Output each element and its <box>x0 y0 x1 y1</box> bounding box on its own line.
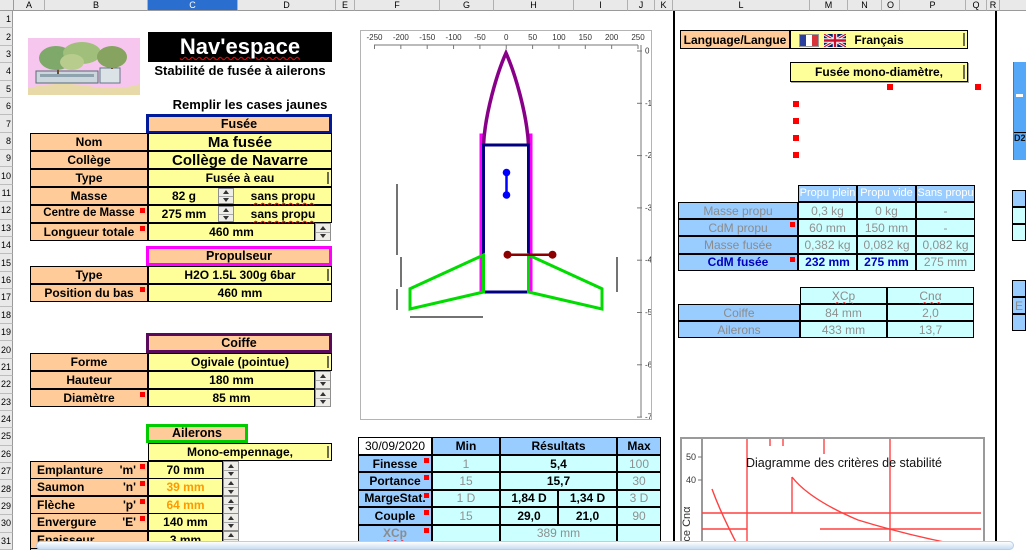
aileron-saumon-label: Saumon'n' <box>30 478 148 496</box>
result-label-margestat.: MargeStat. <box>358 490 432 507</box>
forme-dropdown[interactable]: Ogivale (pointue) <box>148 353 332 371</box>
tick-label: -600 <box>645 360 651 369</box>
propulseur-type-label: Type <box>30 266 148 284</box>
tick-label: 50 <box>528 33 537 42</box>
result-value-0: 5,4 <box>500 455 617 472</box>
row-header-4[interactable]: 4 <box>0 63 13 80</box>
result-value-2a: 1,84 D <box>500 490 558 507</box>
cp-col-header-0: XCp <box>800 287 887 304</box>
row-header-8[interactable]: 8 <box>0 133 13 150</box>
row-header-28[interactable]: 28 <box>0 480 13 497</box>
cp-col-header-1: Cnα <box>887 287 974 304</box>
section-header-coiffe: Coiffe <box>146 333 332 353</box>
formula-fragment: D2 <box>1014 132 1026 143</box>
hauteur-spinner[interactable] <box>315 371 331 389</box>
column-header-B[interactable]: B <box>45 0 148 11</box>
cp-value-0-0: 84 mm <box>800 304 887 321</box>
column-header-J[interactable]: J <box>628 0 655 11</box>
tick-label: -200 <box>393 33 410 42</box>
column-header-C[interactable]: C <box>148 0 238 11</box>
result-value-2b: 1,34 D <box>558 490 617 507</box>
results-header-min: Min <box>432 437 500 455</box>
masse-label: Masse <box>30 187 148 205</box>
column-header-M[interactable]: M <box>810 0 848 11</box>
app-subtitle: Stabilité de fusée à ailerons <box>110 63 370 79</box>
cdm-dot-bottom <box>503 191 511 199</box>
column-header-K[interactable]: K <box>655 0 673 11</box>
result-min-0: 1 <box>432 455 500 472</box>
masse-spinner-down[interactable] <box>219 196 233 204</box>
comment-marker <box>140 516 145 521</box>
row-header-3[interactable]: 3 <box>0 46 13 63</box>
row-header-1[interactable]: 1 <box>0 11 13 28</box>
comment-marker <box>140 208 145 213</box>
row-header-12[interactable]: 12 <box>0 202 13 219</box>
comment-marker <box>975 84 981 90</box>
comment-marker <box>793 101 799 107</box>
tick-label: 0 <box>504 33 509 42</box>
stability-chart: Diagramme des critères de stabilité Port… <box>682 439 983 548</box>
section-header-propulseur: Propulseur <box>146 246 332 266</box>
comment-marker <box>793 152 799 158</box>
aileron-envergure-input[interactable]: 140 mm <box>148 513 223 531</box>
results-header-max: Max <box>617 437 661 455</box>
masses-col-header-1: Propu vide <box>857 185 916 202</box>
row-header-16[interactable]: 16 <box>0 272 13 289</box>
comment-marker <box>140 499 145 504</box>
nom-input[interactable]: Ma fusée <box>148 133 332 151</box>
masses-col-header-0: Propu plein <box>798 185 857 202</box>
partial-table-cell <box>1012 314 1026 331</box>
tick-label: -150 <box>419 33 436 42</box>
longueur-totale-input[interactable]: 460 mm <box>148 223 315 241</box>
aileron-saumon-spinner-up[interactable] <box>224 479 238 487</box>
row-header-7[interactable]: 7 <box>0 115 13 132</box>
result-min-4 <box>432 525 500 542</box>
row-header-27[interactable]: 27 <box>0 463 13 480</box>
row-header-30[interactable]: 30 <box>0 515 13 532</box>
uk-flag-icon[interactable] <box>824 34 846 47</box>
select-all-corner[interactable] <box>0 0 14 11</box>
aileron-saumon-spinner-down[interactable] <box>224 487 238 496</box>
partial-table-cell <box>1012 207 1026 224</box>
page-break-line <box>995 11 997 550</box>
comment-marker <box>790 257 795 262</box>
fin-right-shape <box>529 255 603 309</box>
masse-suffix: sans propu <box>237 188 329 204</box>
column-header-N[interactable]: N <box>848 0 882 11</box>
propulseur-type-dropdown[interactable]: H2O 1.5L 300g 6bar <box>148 266 332 284</box>
masses-value-0-0: 0,3 kg <box>798 202 857 219</box>
comment-marker <box>793 118 799 124</box>
result-max-4 <box>617 525 661 542</box>
masses-value-1-2: - <box>916 219 975 236</box>
comment-marker <box>790 222 795 227</box>
masses-row-label-3: CdM fusée <box>678 254 798 271</box>
forme-label: Forme <box>30 353 148 371</box>
comment-marker <box>424 528 429 533</box>
aileron-epaisseur-spinner-up[interactable] <box>224 532 238 540</box>
row-header-18[interactable]: 18 <box>0 307 13 324</box>
tick-label: -250 <box>366 33 383 42</box>
comment-marker <box>887 84 893 90</box>
comment-marker <box>140 226 145 231</box>
result-min-1: 15 <box>432 472 500 489</box>
language-label: Language/Langue <box>680 30 790 49</box>
column-header-G[interactable]: G <box>440 0 494 11</box>
result-label-finesse: Finesse <box>358 455 432 472</box>
masses-row-label-1: CdM propu <box>678 219 798 236</box>
college-label: Collège <box>30 151 148 169</box>
aileron-envergure-spinner[interactable] <box>223 513 239 531</box>
column-header-D[interactable]: D <box>238 0 336 11</box>
result-max-3: 90 <box>617 507 661 524</box>
result-value-3a: 29,0 <box>500 507 558 524</box>
column-header-Q[interactable]: Q <box>966 0 987 11</box>
aileron-flèche-input[interactable]: 64 mm <box>148 496 223 514</box>
diametre-spinner-down[interactable] <box>316 398 330 407</box>
diametre-label: Diamètre <box>30 389 148 407</box>
row-header-14[interactable]: 14 <box>0 237 13 254</box>
centre-de-masse-input-cell[interactable]: 275 mm sans propu <box>148 205 332 223</box>
aileron-saumon-input[interactable]: 39 mm <box>148 478 223 496</box>
cp-dot-right <box>549 251 557 259</box>
masse-spinner[interactable] <box>218 188 234 204</box>
criteria-curve-left <box>712 489 739 548</box>
partial-table-cell <box>1012 224 1026 241</box>
cp-value-1-0: 433 mm <box>800 321 887 338</box>
language-dropdown[interactable]: Français <box>790 30 968 49</box>
diametre-input[interactable]: 85 mm <box>148 389 315 407</box>
result-label-couple: Couple <box>358 507 432 524</box>
aileron-flèche-label: Flèche'p' <box>30 496 148 514</box>
tick-label: -500 <box>645 308 651 317</box>
tick-label: 200 <box>605 33 619 42</box>
cp-value-0-1: 2,0 <box>887 304 974 321</box>
row-header-10[interactable]: 10 <box>0 167 13 184</box>
masses-value-1-0: 60 mm <box>798 219 857 236</box>
position-du-bas-input[interactable]: 460 mm <box>148 284 332 302</box>
row-header-29[interactable]: 29 <box>0 498 13 515</box>
masses-value-1-1: 150 mm <box>857 219 916 236</box>
section-header-ailerons: Ailerons <box>146 424 248 443</box>
type-label: Type <box>30 169 148 187</box>
masses-value-0-2: - <box>916 202 975 219</box>
tick-label: 50 <box>686 452 696 462</box>
result-value-1: 15,7 <box>500 472 617 489</box>
row-header-24[interactable]: 24 <box>0 411 13 428</box>
tick-label: -700 <box>645 413 651 419</box>
column-header-O[interactable]: O <box>882 0 900 11</box>
aileron-flèche-spinner-up[interactable] <box>224 497 238 505</box>
column-header-F[interactable]: F <box>355 0 440 11</box>
stability-chart-panel: Diagramme des critères de stabilité Port… <box>680 437 985 550</box>
longueur-totale-spinner-up[interactable] <box>316 224 330 232</box>
language-value: Français <box>854 34 903 46</box>
hauteur-input[interactable]: 180 mm <box>148 371 315 389</box>
row-header-20[interactable]: 20 <box>0 341 13 358</box>
tick-label: -200 <box>645 151 651 160</box>
column-header-P[interactable]: P <box>900 0 966 11</box>
row-header-26[interactable]: 26 <box>0 446 13 463</box>
nom-label: Nom <box>30 133 148 151</box>
aileron-flèche-spinner[interactable] <box>223 496 239 514</box>
result-label-xcp: XCp <box>358 525 432 542</box>
hauteur-label: Hauteur <box>30 371 148 389</box>
type-dropdown[interactable]: Fusée à eau <box>148 169 332 187</box>
tick-label: 40 <box>686 475 696 485</box>
masses-value-0-1: 0 kg <box>857 202 916 219</box>
tick-label: -100 <box>446 33 463 42</box>
tick-label: 250 <box>631 33 645 42</box>
aileron-envergure-spinner-up[interactable] <box>224 514 238 522</box>
hauteur-spinner-down[interactable] <box>316 380 330 389</box>
results-header-resultats: Résultats <box>500 437 617 455</box>
tick-label: -400 <box>645 256 651 265</box>
cp-row-label-1: Ailerons <box>678 321 800 338</box>
masses-row-label-0: Masse propu <box>678 202 798 219</box>
column-header-E[interactable]: E <box>336 0 355 11</box>
aileron-emplanture-spinner[interactable] <box>223 461 239 479</box>
column-header-A[interactable]: A <box>14 0 45 11</box>
row-header-19[interactable]: 19 <box>0 324 13 341</box>
masses-col-header-2: Sans propu <box>916 185 975 202</box>
results-date-cell[interactable]: 30/09/2020 <box>358 437 432 455</box>
row-header-9[interactable]: 9 <box>0 150 13 167</box>
partial-table-cell <box>1012 190 1026 207</box>
row-header-21[interactable]: 21 <box>0 359 13 376</box>
masses-value-3-0: 232 mm <box>798 254 857 271</box>
stability-chart-title: Diagramme des critères de stabilité <box>746 456 942 470</box>
french-flag-icon[interactable] <box>799 34 819 47</box>
aileron-emplanture-label: Emplanture'm' <box>30 461 148 479</box>
aileron-emplanture-spinner-down[interactable] <box>224 470 238 479</box>
longueur-totale-label: Longueur totale <box>30 223 148 241</box>
centre-de-masse-label: Centre de Masse <box>30 205 148 223</box>
row-header-17[interactable]: 17 <box>0 289 13 306</box>
diametre-spinner-up[interactable] <box>316 390 330 398</box>
nose-cone-shape <box>484 53 529 145</box>
empennage-type-dropdown[interactable]: Mono-empennage, <box>148 443 332 461</box>
comment-marker <box>140 481 145 486</box>
masses-row-label-2: Masse fusée <box>678 236 798 253</box>
mono-diametre-dropdown[interactable]: Fusée mono-diamètre, <box>790 62 968 82</box>
partial-table-cell <box>1012 280 1026 297</box>
masse-input-cell[interactable]: 82 g sans propu <box>148 187 332 205</box>
spreadsheet-app: Nav'espace Stabilité de fusée à ailerons… <box>0 0 1026 550</box>
row-header-6[interactable]: 6 <box>0 98 13 115</box>
diametre-spinner[interactable] <box>315 389 331 407</box>
comment-marker <box>793 135 799 141</box>
tick-label: -50 <box>474 33 486 42</box>
comment-marker <box>424 493 429 498</box>
result-value-3b: 21,0 <box>558 507 617 524</box>
masses-value-2-2: 0,082 kg <box>916 236 975 253</box>
rocket-diagram-panel: -250-200-150-100-500501001502002500-100-… <box>360 30 652 420</box>
column-header-H[interactable]: H <box>494 0 574 11</box>
page-break-line <box>673 11 675 550</box>
result-min-2: 1 D <box>432 490 500 507</box>
fill-yellow-instruction: Remplir les cases jaunes <box>150 97 350 113</box>
aileron-flèche-spinner-down[interactable] <box>224 504 238 513</box>
cp-dot-left <box>504 251 512 259</box>
aileron-emplanture-spinner-up[interactable] <box>224 462 238 470</box>
row-header-25[interactable]: 25 <box>0 428 13 445</box>
rocket-diagram: -250-200-150-100-500501001502002500-100-… <box>361 31 651 419</box>
row-header-5[interactable]: 5 <box>0 81 13 98</box>
centre-de-masse-spinner[interactable] <box>218 206 234 222</box>
result-max-0: 100 <box>617 455 661 472</box>
result-max-1: 30 <box>617 472 661 489</box>
comment-marker <box>140 464 145 469</box>
row-header-31[interactable]: 31 <box>0 533 13 550</box>
row-header-15[interactable]: 15 <box>0 254 13 271</box>
comment-marker <box>424 510 429 515</box>
tick-label: 100 <box>552 33 566 42</box>
tick-label: 0 <box>645 47 650 56</box>
section-header-fusee: Fusée <box>146 114 332 134</box>
comment-marker <box>424 458 429 463</box>
result-label-portance: Portance <box>358 472 432 489</box>
result-min-3: 15 <box>432 507 500 524</box>
fin-left-shape <box>410 255 484 309</box>
tick-label: -100 <box>645 99 651 108</box>
aileron-envergure-spinner-down[interactable] <box>224 522 238 531</box>
hauteur-spinner-up[interactable] <box>316 372 330 380</box>
row-header-22[interactable]: 22 <box>0 376 13 393</box>
partial-table-cell: E <box>1012 297 1026 314</box>
column-header-L[interactable]: L <box>673 0 810 11</box>
aileron-emplanture-input[interactable]: 70 mm <box>148 461 223 479</box>
college-input[interactable]: Collège de Navarre <box>148 151 332 169</box>
row-header-23[interactable]: 23 <box>0 394 13 411</box>
result-value-4: 389 mm <box>500 525 617 542</box>
position-du-bas-label: Position du bas <box>30 284 148 302</box>
aileron-saumon-spinner[interactable] <box>223 478 239 496</box>
app-title: Nav'espace <box>180 34 300 60</box>
result-max-2: 3 D <box>617 490 661 507</box>
app-title-banner: Nav'espace <box>148 32 332 62</box>
masses-value-3-2: 275 mm <box>916 254 975 271</box>
comment-marker <box>140 287 145 292</box>
row-header-11[interactable]: 11 <box>0 185 13 202</box>
row-header-2[interactable]: 2 <box>0 28 13 45</box>
masses-value-2-1: 0,082 kg <box>857 236 916 253</box>
cp-row-label-0: Coiffe <box>678 304 800 321</box>
column-header-I[interactable]: I <box>574 0 628 11</box>
column-header-R[interactable]: R <box>987 0 1000 11</box>
tick-label: -300 <box>645 203 651 212</box>
masse-value: 82 g <box>149 188 219 204</box>
centre-de-masse-spinner-down[interactable] <box>219 214 233 222</box>
comment-marker <box>140 392 145 397</box>
tick-label: 150 <box>579 33 593 42</box>
masses-value-3-1: 275 mm <box>857 254 916 271</box>
centre-de-masse-suffix: sans propu <box>237 206 329 222</box>
formula-box-partial: D2 <box>1013 62 1026 160</box>
comment-marker <box>424 475 429 480</box>
cp-value-1-1: 13,7 <box>887 321 974 338</box>
aileron-envergure-label: Envergure'E' <box>30 513 148 531</box>
cdm-dot-top <box>503 169 511 177</box>
centre-de-masse-value: 275 mm <box>149 206 219 222</box>
masses-value-2-0: 0,382 kg <box>798 236 857 253</box>
longueur-totale-spinner[interactable] <box>315 223 331 241</box>
body-tube-shape <box>484 145 529 292</box>
longueur-totale-spinner-down[interactable] <box>316 232 330 241</box>
row-header-13[interactable]: 13 <box>0 220 13 237</box>
horizontal-scrollbar[interactable] <box>36 541 1014 550</box>
